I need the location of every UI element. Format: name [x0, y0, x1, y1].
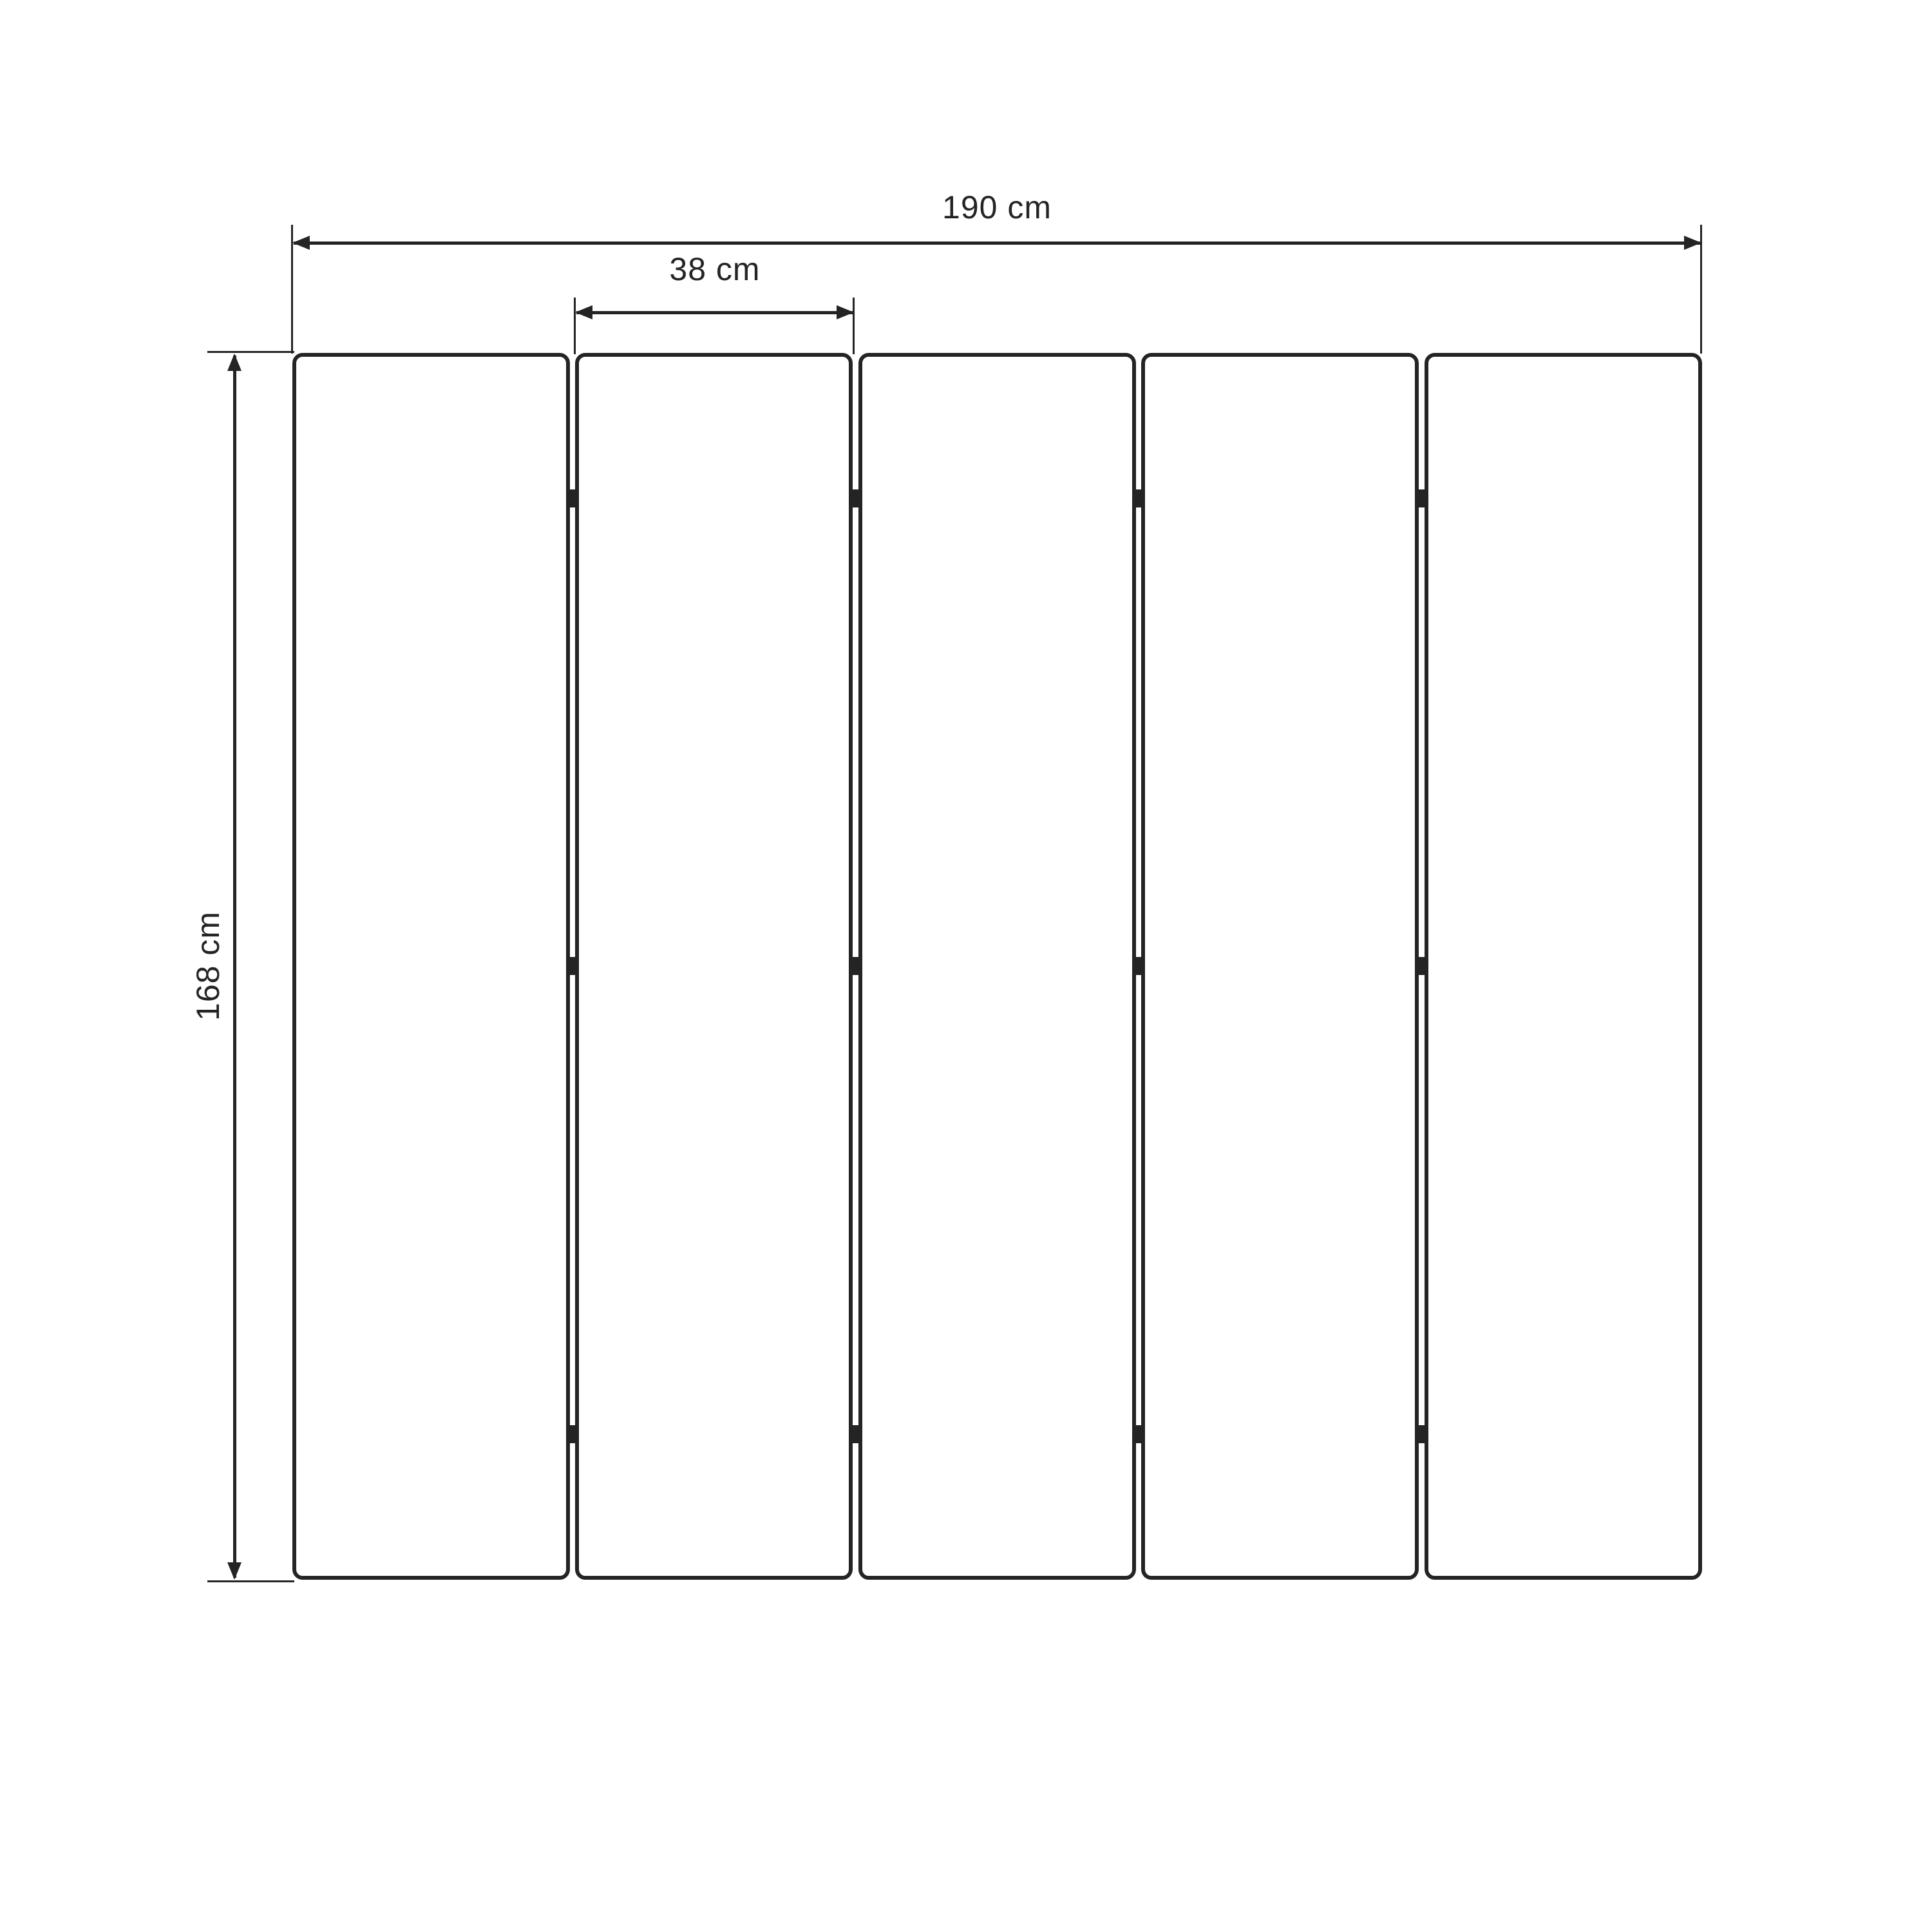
arrow-left-icon [575, 305, 592, 319]
hinge [568, 957, 577, 975]
arrow-right-icon [837, 305, 854, 319]
hinge [851, 957, 860, 975]
hinge [568, 489, 577, 507]
hinge [1134, 957, 1143, 975]
hinge [851, 489, 860, 507]
panel-1 [292, 353, 570, 1580]
panel-width-label: 38 cm [618, 251, 811, 287]
height-label: 168 cm [189, 869, 227, 1063]
hinge [1417, 1425, 1426, 1443]
hinge [1134, 1425, 1143, 1443]
arrow-down-icon [227, 1562, 241, 1580]
panel-3 [858, 353, 1136, 1580]
extension-line-top [207, 351, 294, 353]
arrow-left-icon [292, 236, 310, 250]
hinge [568, 1425, 577, 1443]
hinge [1417, 489, 1426, 507]
hinge [1134, 489, 1143, 507]
dimension-line-panel-width [576, 311, 853, 314]
dimension-line-height [233, 355, 236, 1578]
panel-2 [575, 353, 853, 1580]
panel-4 [1141, 353, 1419, 1580]
panel-5 [1425, 353, 1702, 1580]
dimension-line-total-width [294, 241, 1700, 245]
technical-drawing: 190 cm 38 cm 168 cm [0, 0, 1932, 1932]
hinge [851, 1425, 860, 1443]
extension-line-bottom [207, 1580, 294, 1582]
arrow-up-icon [227, 354, 241, 371]
total-width-label: 190 cm [868, 189, 1126, 225]
hinge [1417, 957, 1426, 975]
arrow-right-icon [1684, 236, 1701, 250]
